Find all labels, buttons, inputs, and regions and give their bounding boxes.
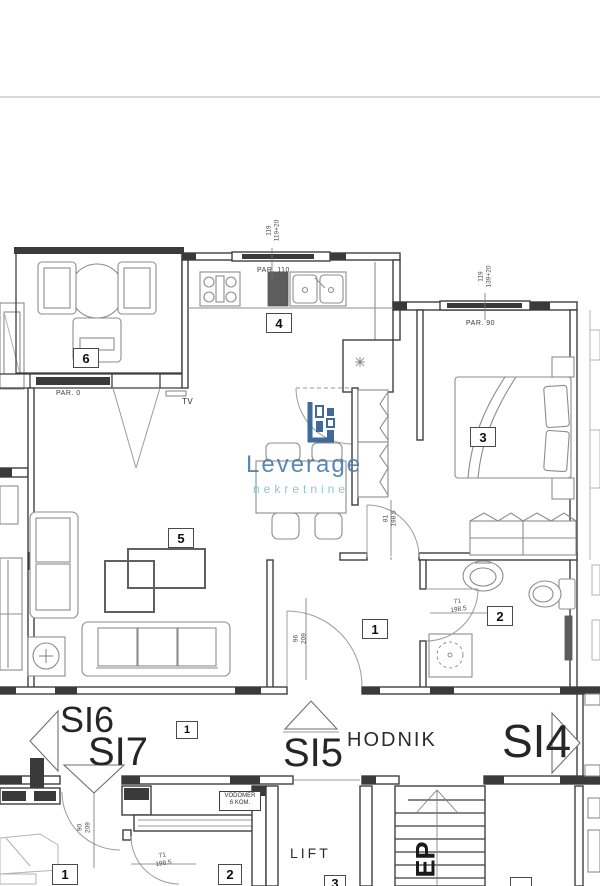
par-kitchen-text: PAR. 110 — [257, 267, 290, 274]
par-bedroom-text: PAR. 90 — [466, 320, 495, 327]
neighbour-left-fragments — [0, 303, 28, 670]
room-label-living: 5 — [168, 528, 194, 548]
terrace-furniture — [38, 262, 156, 362]
room-label-kitchen: 4 — [266, 313, 292, 333]
tv-unit — [166, 391, 186, 396]
vodomer-line2: 6 KOM. — [220, 800, 260, 807]
terrace-window — [0, 374, 182, 468]
lower-room-label-cut — [510, 877, 532, 886]
shaft-symbol-icon — [355, 357, 365, 367]
dim-kitchen-window: 119 119+20 — [266, 211, 281, 251]
corridor-si5-label: SI5 — [283, 733, 343, 773]
neighbour-right-fragments — [590, 310, 600, 660]
vodomer-box: VODOMER 6 KOM. — [219, 791, 261, 811]
room-label-bedroom: 3 — [470, 427, 496, 447]
dim-closet-door: 81 198.5 — [383, 499, 398, 539]
floorplan-page: Leverage nekretnine 6 4 3 5 1 2 1 1 2 3 … — [0, 0, 600, 886]
par-terrace-text: PAR. 0 — [56, 390, 81, 397]
corridor-unit-badge: 1 — [176, 721, 198, 739]
living-furniture — [28, 512, 230, 676]
logo-subtitle: nekretnine — [246, 482, 356, 496]
corridor-si4-label: SI4 — [502, 718, 571, 764]
agency-logo: Leverage nekretnine — [246, 400, 356, 496]
closet-nook — [352, 388, 388, 505]
corridor-hodnik-label: HODNIK — [347, 729, 437, 752]
dim-bedroom-window: 119 139+20 — [478, 257, 493, 297]
tv-text: TV — [182, 397, 193, 406]
corridor-si7-label: SI7 — [88, 732, 148, 772]
stairs-ep-label: EP — [411, 834, 442, 878]
logo-building-icon — [300, 400, 346, 446]
lift-label: LIFT — [290, 845, 331, 861]
dim-lower-door1: 90 209 — [77, 808, 92, 848]
lower-room-label-3: 3 — [324, 875, 346, 886]
vodomer-line1: VODOMER — [220, 793, 260, 800]
bedroom-furniture — [455, 357, 576, 555]
dim-entrance-door: 96 209 — [293, 619, 308, 659]
lower-room-label-2: 2 — [218, 864, 242, 885]
logo-title: Leverage — [246, 451, 356, 479]
room-label-hall: 1 — [362, 619, 388, 639]
room-label-terrace: 6 — [73, 348, 99, 368]
room-label-bathroom: 2 — [487, 606, 513, 626]
lower-room-label-1: 1 — [52, 864, 78, 885]
